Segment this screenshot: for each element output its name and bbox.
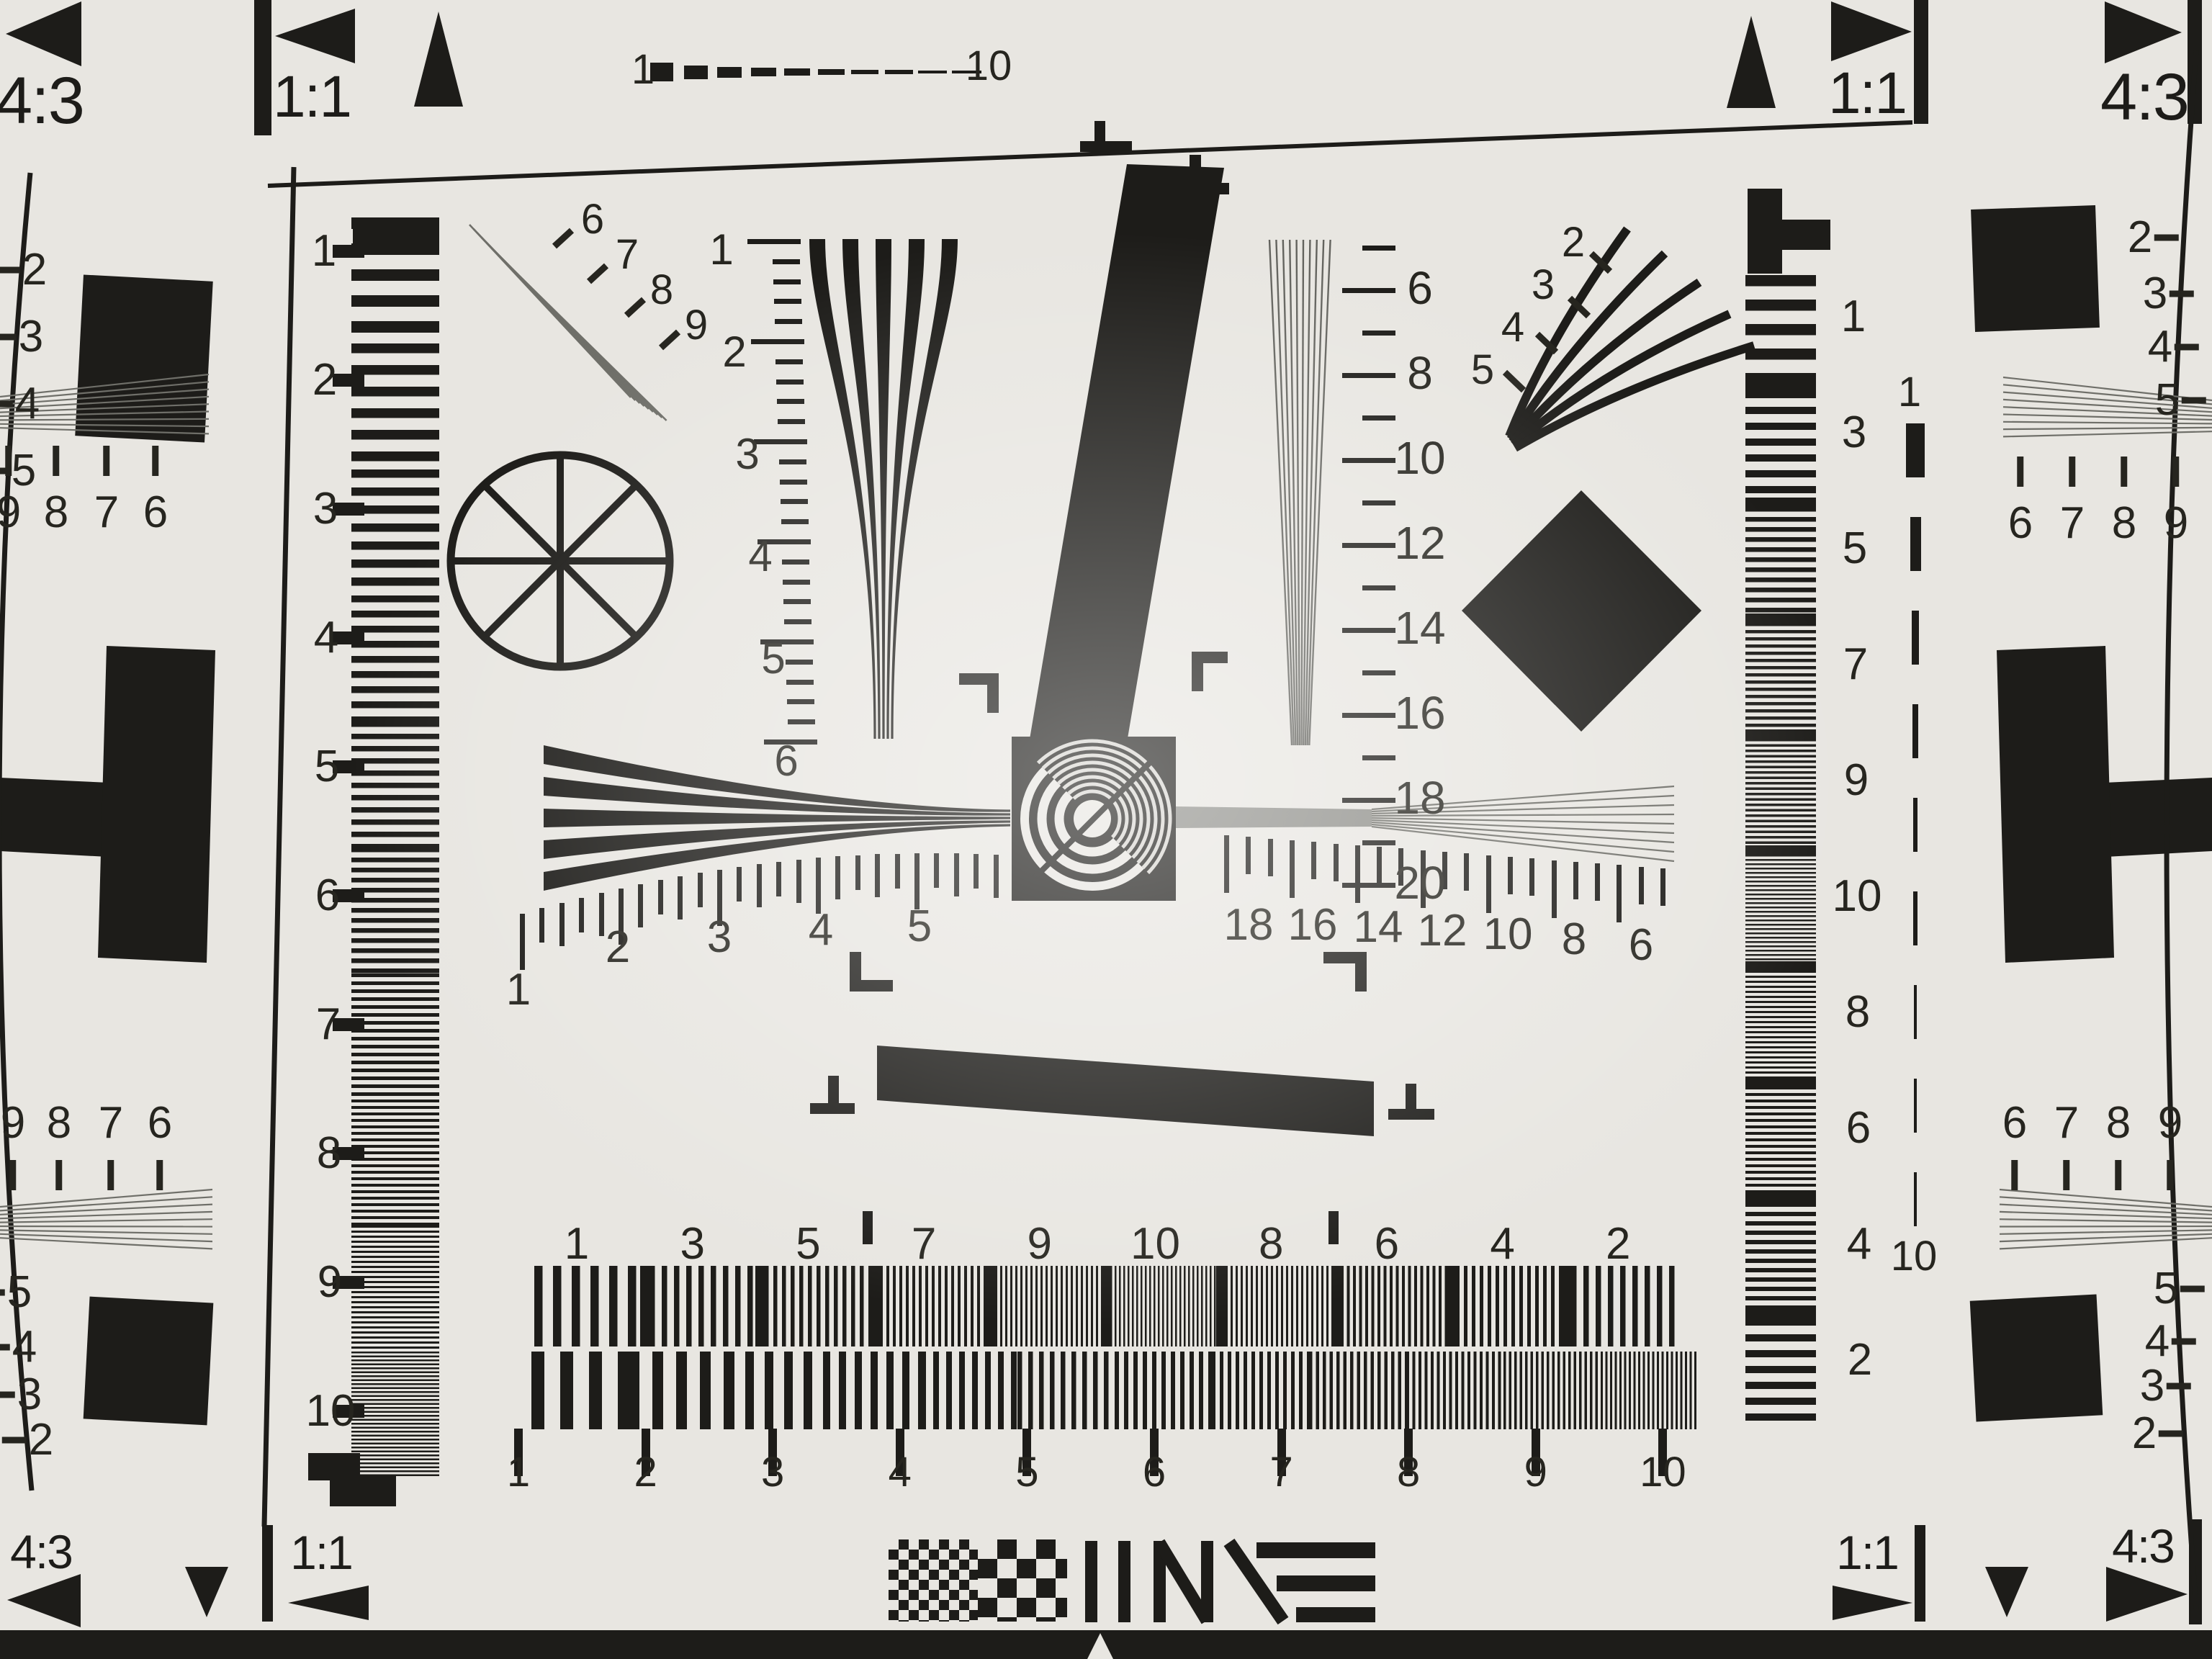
bottom-ruler-number: 2: [634, 1452, 657, 1493]
right-column-number: 5: [1843, 526, 1867, 571]
center-ruler-number: 6: [1629, 923, 1653, 968]
sweep-scale-number: 2: [1606, 1222, 1630, 1267]
bottom-ruler-number: 7: [1269, 1452, 1292, 1493]
vertical-fan-scale-number: 14: [1394, 605, 1445, 651]
hyperbola-scale-number: 2: [722, 331, 746, 374]
sweep-scale-number: 8: [1259, 1222, 1283, 1267]
edge-number: 6: [2002, 1101, 2027, 1146]
edge-number: 5: [2154, 1267, 2178, 1311]
edge-number: 8: [44, 490, 68, 535]
edge-number: 5: [7, 1270, 32, 1315]
burst-scale-number: 7: [616, 234, 639, 276]
aspect-label-1-1: 1:1: [1836, 1529, 1898, 1576]
edge-number: 8: [2112, 501, 2136, 546]
hyperbola-scale-number: 6: [774, 739, 798, 783]
aspect-label-4-3: 4:3: [10, 1528, 72, 1575]
center-ruler-number: 3: [707, 915, 732, 960]
center-ruler-number: 4: [809, 908, 833, 953]
edge-number: 3: [2143, 271, 2167, 316]
bottom-ruler-number: 10: [1640, 1452, 1686, 1493]
right-column-number: 9: [1844, 758, 1869, 803]
edge-number: 6: [2008, 501, 2033, 546]
edge-number: 6: [148, 1101, 172, 1146]
right-column-number: 3: [1842, 410, 1866, 455]
vertical-fan-scale-number: 16: [1394, 690, 1445, 736]
right-column-number: 10: [1833, 874, 1882, 919]
hyperbola-scale-number: 1: [709, 228, 733, 271]
left-scale-number: 8: [317, 1131, 341, 1176]
left-scale-number: 10: [306, 1389, 356, 1434]
bottom-ruler-number: 1: [507, 1452, 530, 1493]
hyperbola-scale-number: 4: [748, 535, 772, 578]
edge-number: 2: [2128, 215, 2152, 260]
center-ruler-number: 5: [907, 904, 932, 949]
burst-scale-number: 9: [685, 305, 708, 346]
burst-scale-number: 8: [650, 269, 673, 311]
edge-number: 4: [2145, 1319, 2170, 1364]
aspect-label-1-1: 1:1: [290, 1529, 352, 1576]
vertical-fan-scale-number: 20: [1394, 860, 1445, 906]
sweep-scale-number: 5: [796, 1222, 820, 1267]
edge-number: 7: [2054, 1101, 2079, 1146]
aspect-label-4-3: 4:3: [2100, 64, 2188, 130]
left-scale-number: 6: [315, 873, 340, 918]
right-column-number: 1: [1841, 295, 1866, 339]
edge-number: 2: [2132, 1411, 2157, 1456]
sweep-scale-number: 3: [680, 1222, 704, 1267]
vertical-fan-scale-number: 8: [1407, 350, 1433, 396]
right-column-number: 2: [1848, 1338, 1872, 1382]
aspect-label-1-1: 1:1: [273, 68, 351, 127]
sweep-scale-number: 6: [1375, 1222, 1399, 1267]
edge-number: 5: [2155, 378, 2180, 423]
hyperbola-scale-number: 3: [735, 433, 759, 476]
edge-number: 7: [94, 490, 119, 535]
bottom-ruler-number: 8: [1397, 1452, 1420, 1493]
left-scale-number: 5: [315, 745, 339, 789]
center-ruler-number: 18: [1224, 903, 1274, 948]
aspect-label-4-3: 4:3: [2112, 1522, 2174, 1570]
left-scale-number: 9: [318, 1260, 342, 1305]
bottom-ruler-number: 3: [761, 1452, 784, 1493]
bottom-ruler-number: 4: [889, 1452, 912, 1493]
edge-number: 3: [19, 315, 43, 359]
center-ruler-number: 10: [1483, 912, 1533, 957]
vertical-fan-scale-number: 18: [1394, 775, 1445, 821]
fan-scale-number: 3: [1532, 264, 1555, 306]
fan-scale-number: 2: [1562, 222, 1585, 264]
edge-number: 4: [12, 1325, 37, 1370]
right-column-number: 8: [1845, 990, 1870, 1035]
edge-number: 7: [2060, 501, 2085, 546]
right-dash-scale-number: 1: [1898, 372, 1921, 413]
right-column-number: 6: [1846, 1106, 1871, 1151]
center-ruler-number: 2: [606, 925, 630, 970]
center-ruler-number: 14: [1354, 905, 1403, 950]
sweep-scale-number: 4: [1490, 1222, 1514, 1267]
aspect-label-4-3: 4:3: [0, 68, 84, 134]
edge-number: 9: [2158, 1101, 2182, 1146]
edge-number: 6: [143, 490, 168, 535]
left-scale-number: 1: [312, 229, 336, 274]
edge-number: 2: [29, 1418, 53, 1462]
left-scale-number: 2: [313, 358, 337, 403]
center-ruler-number: 16: [1288, 903, 1338, 948]
edge-number: 4: [15, 382, 40, 426]
edge-number: 9: [2164, 501, 2188, 546]
sweep-scale-number: 7: [912, 1222, 936, 1267]
edge-number: 8: [2106, 1101, 2131, 1146]
center-ruler-number: 8: [1562, 917, 1586, 962]
right-dash-scale-number: 10: [1891, 1236, 1938, 1277]
vertical-fan-scale-number: 12: [1394, 520, 1445, 566]
left-scale-number: 4: [314, 616, 338, 660]
bottom-ruler-number: 9: [1524, 1452, 1547, 1493]
right-column-number: 7: [1843, 642, 1868, 687]
iso-resolution-test-chart: 4:3 1:1 1:1 4:3 4:3 1:1 1:1 4:3 12345678…: [0, 0, 2212, 1659]
center-ruler-number: 1: [506, 968, 531, 1012]
fan-scale-number: 4: [1501, 307, 1524, 349]
right-column-number: 4: [1847, 1222, 1871, 1267]
edge-number: 5: [12, 449, 36, 493]
bottom-ruler-number: 5: [1015, 1452, 1038, 1493]
edge-number: 9: [1, 1101, 25, 1146]
vertical-fan-scale-number: 6: [1407, 265, 1433, 311]
edge-number: 3: [2140, 1364, 2164, 1408]
fan-scale-number: 5: [1471, 349, 1494, 391]
vertical-fan-scale-number: 10: [1394, 435, 1445, 481]
left-scale-number: 7: [316, 1002, 341, 1047]
top-dash-scale-number: 10: [966, 45, 1012, 87]
edge-number: 4: [2148, 325, 2172, 369]
edge-number: 2: [22, 248, 47, 292]
center-ruler-number: 12: [1418, 909, 1467, 953]
aspect-label-1-1: 1:1: [1828, 64, 1906, 123]
left-scale-number: 3: [313, 487, 338, 531]
sweep-scale-number: 9: [1028, 1222, 1052, 1267]
edge-number: 7: [99, 1101, 123, 1146]
burst-scale-number: 6: [581, 199, 604, 240]
sweep-scale-number: 1: [565, 1222, 589, 1267]
edge-number: 9: [0, 490, 21, 535]
edge-number: 8: [47, 1101, 71, 1146]
edge-number: 3: [17, 1372, 42, 1417]
hyperbola-scale-number: 5: [761, 637, 785, 680]
chart-labels: 4:3 1:1 1:1 4:3 4:3 1:1 1:1 4:3 12345678…: [0, 0, 2212, 1659]
top-dash-scale-number: 1: [631, 49, 655, 91]
sweep-scale-number: 10: [1130, 1222, 1180, 1267]
bottom-ruler-number: 6: [1143, 1452, 1166, 1493]
